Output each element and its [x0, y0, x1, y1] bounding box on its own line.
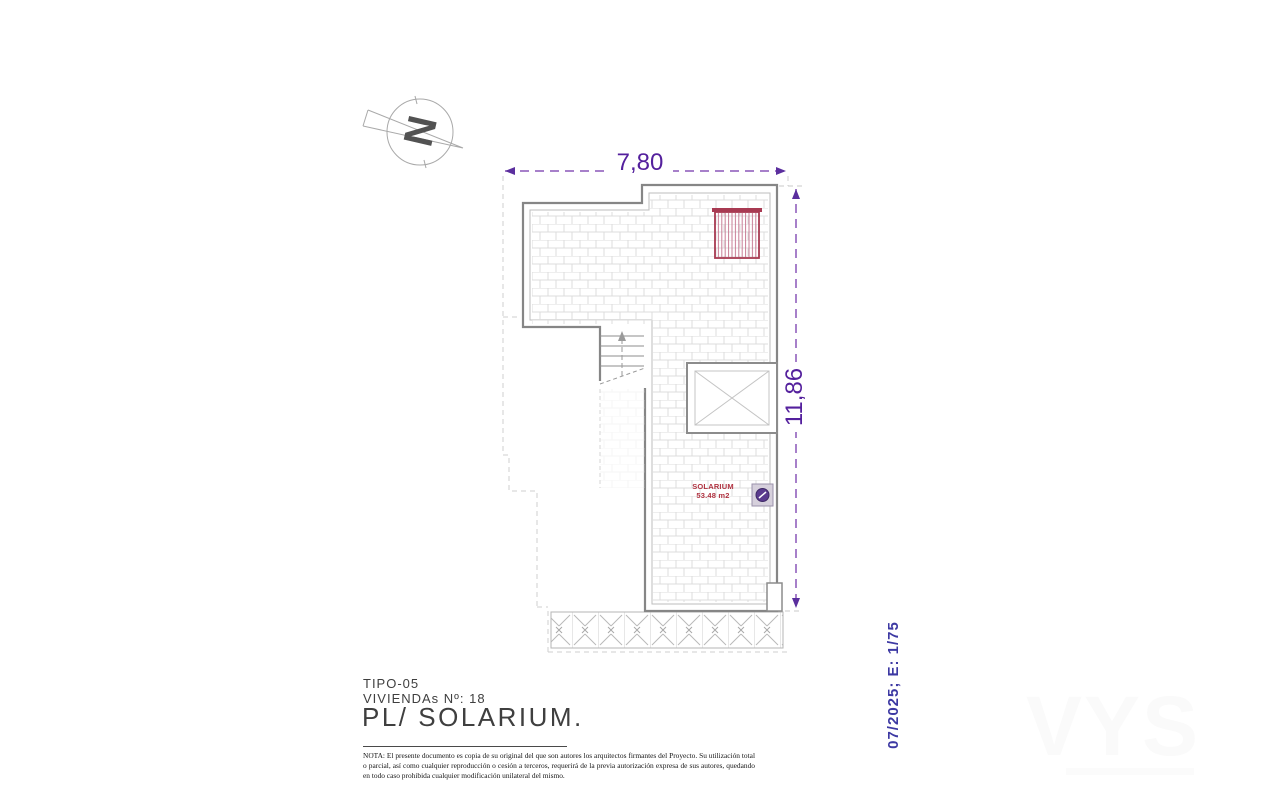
- room-name: SOLARIUM: [683, 482, 743, 491]
- bottom-trellis-strip: [551, 612, 783, 648]
- under-stair-faint-area: [600, 389, 645, 488]
- dimension-height-label: 11,86: [782, 362, 808, 432]
- watermark-logo: VYS: [1026, 684, 1200, 768]
- void-opening: [687, 363, 777, 433]
- note-divider: [363, 746, 567, 747]
- watermark-tagline: [1066, 768, 1194, 775]
- legal-note: NOTA: El presente documento es copia de …: [363, 751, 755, 781]
- date-scale-stamp: 07/2025; E: 1/75: [885, 610, 905, 760]
- page-title: PL/ SOLARIUM.: [362, 702, 584, 733]
- title-type-code: TIPO-05: [363, 676, 419, 691]
- room-label: SOLARIUM 53.48 m2: [683, 482, 743, 500]
- drain-icon: [752, 484, 773, 506]
- pergola-skylight: [712, 208, 762, 258]
- pillar: [767, 583, 782, 611]
- dimension-width-label: 7,80: [607, 150, 673, 176]
- room-area: 53.48 m2: [683, 491, 743, 500]
